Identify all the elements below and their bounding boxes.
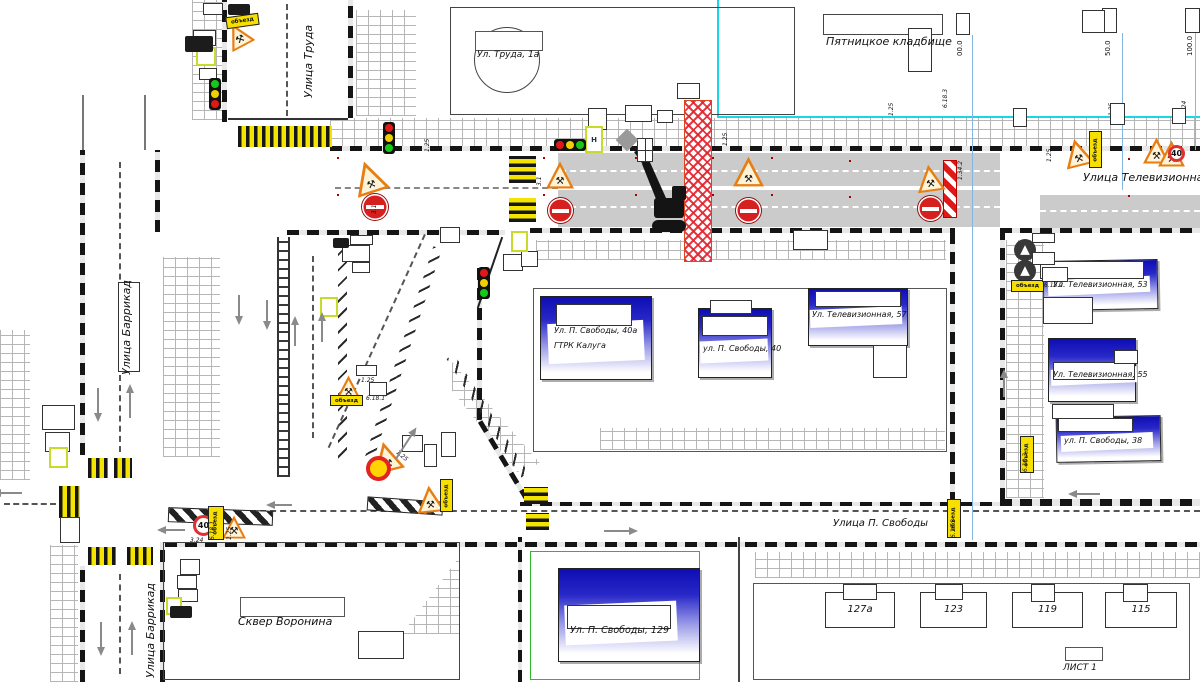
detour-plate: объезд [1089, 131, 1102, 168]
utility-box [1185, 8, 1200, 33]
signal-lens [211, 90, 219, 98]
utility-box [710, 300, 752, 314]
utility-box [352, 262, 370, 273]
utility-box [356, 365, 377, 376]
sidewalk [356, 10, 416, 116]
sign-code: 6.18.1 [366, 395, 385, 402]
utility-box [60, 517, 80, 543]
signal-lens [566, 141, 574, 149]
temporary-signal [366, 456, 391, 481]
signal-lens [480, 269, 488, 277]
curb [80, 566, 85, 682]
vehicle [170, 606, 192, 618]
sidewalk [0, 330, 30, 480]
building-129-label: Ул. П. Свободы, 129 [570, 626, 669, 637]
street-label-truda: Улица Труда [302, 25, 315, 98]
crosswalk [238, 126, 332, 147]
crosswalk [509, 156, 536, 183]
building-119-label: 119 [1038, 604, 1057, 616]
direction-arrow [270, 504, 292, 506]
label-box [475, 31, 543, 51]
signal-lens [480, 289, 488, 297]
crosswalk [59, 486, 80, 518]
direction-arrow [294, 320, 296, 346]
direction-arrow [131, 625, 133, 655]
crosswalk [114, 458, 132, 478]
sign-code: 3.24 [190, 537, 203, 544]
roadworks-icon: ⚒ [354, 176, 389, 196]
roadworks-sign: ⚒ [348, 156, 391, 199]
utility-box [177, 575, 197, 589]
island-hatch [447, 354, 529, 477]
building-55-label: Ул. Телевизионная, 55 [1053, 370, 1148, 379]
building-57-label: Ул. Телевизионная, 57 [812, 310, 907, 319]
utility-box [1032, 252, 1055, 265]
barrier-post [1128, 195, 1130, 197]
building-40-label: ул. П. Свободы, 40 [703, 344, 781, 353]
direction-arrow [266, 300, 268, 326]
traffic-light [554, 139, 586, 151]
centerline [4, 503, 56, 505]
station-line [972, 35, 973, 540]
curb [530, 228, 955, 233]
sign-board: Н [585, 126, 603, 153]
detour-plate: объезд [225, 13, 259, 29]
building-40a-label: Ул. П. Свободы, 40а ГТРК Калуга [554, 326, 637, 350]
signal-lens [385, 134, 393, 142]
barrier-post [337, 157, 339, 159]
sign-code: 1.25 [226, 527, 233, 540]
barrier-post [1128, 158, 1130, 160]
detour-plate: объезд [1011, 280, 1044, 292]
centerline [312, 256, 314, 438]
signal-lens [211, 80, 219, 88]
building-127a-label: 127а [847, 604, 872, 616]
lane-line [560, 170, 1000, 172]
measurement-100: 100.0 [1186, 36, 1194, 56]
utility-box [702, 316, 768, 336]
utility-box [793, 230, 828, 250]
utility-box [935, 584, 963, 600]
signal-lens [211, 100, 219, 108]
no-entry-sign [918, 196, 943, 221]
no-entry-sign [736, 198, 761, 223]
sign-code: 6.18.3 [942, 89, 949, 108]
island-hatch [338, 238, 347, 460]
sign-board [511, 231, 528, 252]
street-label-barrikad-upper: Улица Баррикад [120, 280, 133, 375]
utility-box [1013, 108, 1027, 127]
barrier-post [712, 157, 714, 159]
curb [330, 146, 1200, 151]
utility-box [956, 13, 970, 35]
sidewalk [755, 552, 1200, 578]
building-38-label: ул. П. Свободы, 38 [1064, 436, 1142, 445]
sidewalk [163, 257, 220, 457]
sign-code: 1.25 [722, 133, 729, 146]
centerline [286, 4, 288, 116]
curb [518, 537, 522, 682]
utility-box [1123, 584, 1148, 602]
place-label-cemetery: Пятницкое кладбище [826, 36, 952, 49]
curb [287, 230, 505, 235]
barrier-post [849, 196, 851, 198]
no-entry-sign [548, 198, 573, 223]
signal-lens [480, 279, 488, 287]
utility-box [1172, 108, 1186, 124]
sidewalk [330, 118, 1200, 148]
sign-code: 6.18.1 [209, 521, 216, 540]
sign-board [49, 447, 68, 468]
direction-arrow [1072, 493, 1100, 495]
place-label-park: Сквер Воронина [238, 616, 332, 629]
signal-lens [576, 141, 584, 149]
crosswalk [526, 513, 549, 530]
crosswalk [88, 458, 108, 478]
block-edge [738, 537, 740, 682]
sign-code: 1.34.2 [957, 161, 964, 180]
sign-code: 6.18.3 [1022, 453, 1029, 472]
barrier-post [543, 157, 545, 159]
building-57-wing [873, 345, 907, 378]
curb [950, 232, 955, 504]
utility-box [677, 83, 700, 99]
signal-lens [385, 144, 393, 152]
sign-code: 1.25 [424, 139, 431, 152]
utility-box [625, 105, 652, 122]
barrier-post [543, 194, 545, 196]
utility-box [369, 382, 387, 396]
utility-box [180, 559, 200, 575]
barrier-post [771, 157, 773, 159]
sign-code: 6.18.3 [950, 519, 957, 538]
utility-box [42, 405, 75, 430]
building-40a-line1: Ул. П. Свободы, 40а [554, 326, 637, 335]
utility-box [1058, 418, 1133, 432]
building-53-wing [1043, 297, 1093, 324]
utility-box [203, 3, 223, 15]
utility-box [440, 227, 460, 243]
direction-arrow [97, 388, 99, 418]
sidewalk [50, 545, 78, 682]
building-truda1a-label: Ул. Труда, 1а [477, 50, 539, 60]
curb [80, 150, 85, 455]
building-53-label: Ул. Телевизионная, 53 [1053, 280, 1148, 289]
sign-code: 1.25 [1046, 149, 1053, 162]
traffic-light [478, 267, 490, 299]
building-115-label: 115 [1131, 604, 1150, 616]
curb [155, 150, 160, 232]
utility-box [815, 291, 901, 307]
crosswalk [127, 547, 153, 565]
pole-marker [637, 138, 653, 162]
roadworks-icon: ⚒ [227, 30, 255, 51]
signal-lens [556, 141, 564, 149]
curb [348, 0, 353, 118]
utility-box [521, 251, 538, 267]
sidewalk [536, 240, 946, 260]
utility-box [441, 432, 456, 457]
barrier-post [635, 194, 637, 196]
street-label-svobody: Улица П. Свободы [833, 518, 928, 530]
vehicle [333, 238, 349, 248]
utility-box [556, 304, 632, 326]
barrier-post [849, 160, 851, 162]
building-40a-line2: ГТРК Калуга [554, 341, 637, 350]
vehicle [228, 4, 250, 15]
centerline [119, 574, 121, 674]
sign-code: 3.1 [536, 176, 543, 186]
crosswalk [88, 547, 116, 565]
detour-plate: объезд [440, 479, 453, 512]
utility-box [657, 110, 673, 123]
sheet-box [1065, 647, 1103, 661]
direction-arrow [129, 388, 131, 418]
utility-box [1114, 350, 1138, 364]
street-label-televizionnaya: Улица Телевизионная [1083, 172, 1200, 185]
curb [1000, 499, 1200, 503]
utility-box [1082, 10, 1105, 33]
utility-box [843, 584, 877, 600]
speed-limit-sign: 40 [1168, 145, 1185, 162]
traffic-light [209, 78, 221, 110]
utility-box [424, 444, 437, 467]
crosswalk [509, 198, 536, 222]
traffic-scheme-drawing: 127а 123 119 115 ⚒⚒⚒⚒⚒⚒⚒⚒⚒⚒⚒⚒4040объездо… [0, 0, 1200, 682]
utility-box [1052, 404, 1114, 419]
direction-arrow [161, 529, 185, 531]
barrier-post [771, 194, 773, 196]
crosswalk [524, 487, 548, 504]
lane-line [1040, 210, 1200, 212]
station-line [1195, 33, 1196, 150]
signal-lens [385, 124, 393, 132]
road-edge [144, 95, 146, 150]
direction-arrow [0, 492, 22, 494]
sign-code: 1.25 [888, 103, 895, 116]
direction-arrow [604, 530, 634, 532]
label-box [240, 597, 345, 617]
utility-box [1031, 584, 1055, 602]
building-123-label: 123 [944, 604, 963, 616]
direction-arrow [1003, 373, 1005, 397]
direction-arrow [321, 316, 323, 342]
measurement-50: 50.0 [1104, 40, 1112, 56]
direction-arrow [238, 295, 240, 321]
sign-code: 3.1 [371, 204, 378, 214]
utility-line [717, 116, 1200, 118]
utility-box [503, 254, 523, 271]
direction-arrow [100, 622, 102, 652]
utility-box [358, 631, 404, 659]
median-strip [277, 237, 290, 477]
sheet-label: ЛИСТ 1 [1063, 663, 1097, 673]
utility-box [1032, 233, 1055, 243]
measurement-0: 00.0 [956, 40, 964, 56]
road-edge [82, 95, 84, 150]
barrier-post [337, 194, 339, 196]
utility-box [350, 235, 373, 245]
utility-box [1110, 103, 1125, 125]
stop-line [228, 118, 348, 120]
curb [1000, 228, 1200, 233]
traffic-light [383, 122, 395, 154]
vehicle [185, 36, 213, 52]
detour-plate: объезд [330, 395, 363, 406]
street-label-barrikad-lower: Улица Баррикад [144, 583, 157, 678]
barrier-post [712, 194, 714, 196]
